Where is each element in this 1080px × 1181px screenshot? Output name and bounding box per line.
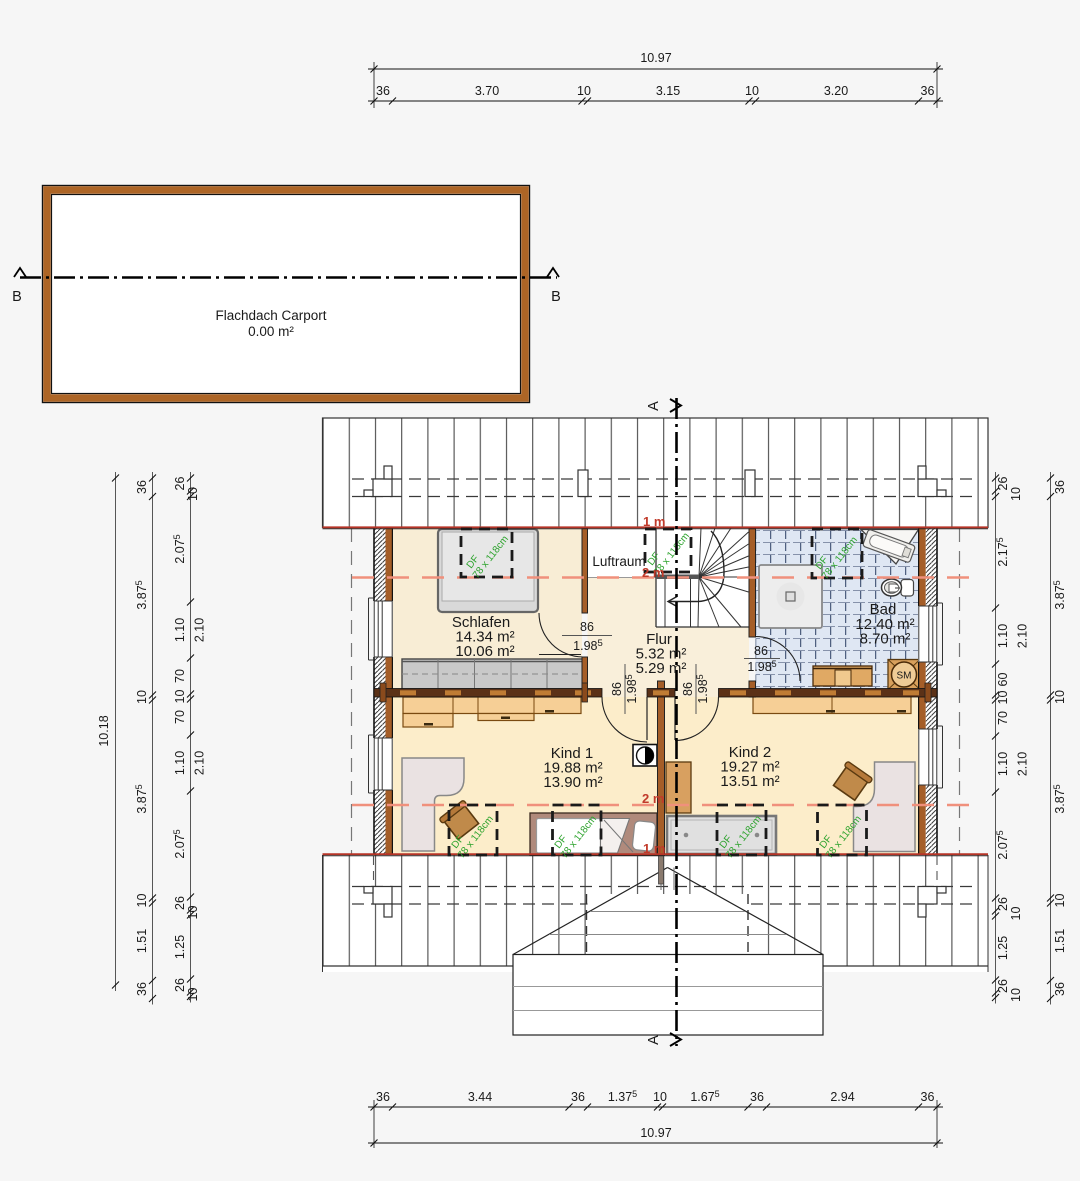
svg-text:26: 26 (996, 477, 1010, 491)
svg-text:10: 10 (996, 691, 1010, 705)
svg-text:13.51 m²: 13.51 m² (720, 773, 779, 790)
svg-text:2.10: 2.10 (1016, 624, 1030, 648)
svg-text:Luftraum: Luftraum (592, 554, 645, 569)
svg-text:86: 86 (610, 682, 624, 696)
svg-text:B: B (551, 289, 561, 305)
svg-text:26: 26 (173, 477, 187, 491)
svg-text:26: 26 (996, 897, 1010, 911)
svg-text:10: 10 (653, 1090, 667, 1104)
svg-text:10.97: 10.97 (640, 1126, 671, 1140)
svg-text:36: 36 (1053, 982, 1067, 996)
svg-text:10: 10 (1009, 487, 1023, 501)
svg-text:1.10: 1.10 (173, 618, 187, 642)
svg-text:10: 10 (135, 894, 149, 908)
svg-text:1 m: 1 m (643, 841, 665, 856)
svg-text:10.06 m²: 10.06 m² (455, 643, 514, 660)
svg-text:1.25: 1.25 (173, 935, 187, 959)
svg-text:36: 36 (376, 1090, 390, 1104)
svg-text:10: 10 (1009, 988, 1023, 1002)
svg-text:2.10: 2.10 (193, 751, 207, 775)
svg-text:26: 26 (996, 979, 1010, 993)
svg-text:1.25: 1.25 (996, 936, 1010, 960)
svg-text:1.10: 1.10 (996, 624, 1010, 648)
svg-text:3.15: 3.15 (656, 84, 680, 98)
svg-text:36: 36 (750, 1090, 764, 1104)
svg-text:10.18: 10.18 (97, 715, 111, 746)
svg-text:2.10: 2.10 (1016, 752, 1030, 776)
svg-text:10: 10 (186, 906, 200, 920)
svg-text:13.90 m²: 13.90 m² (543, 774, 602, 791)
svg-text:36: 36 (571, 1090, 585, 1104)
svg-text:70: 70 (173, 710, 187, 724)
svg-text:36: 36 (135, 480, 149, 494)
svg-text:70: 70 (996, 711, 1010, 725)
svg-text:5.29 m²: 5.29 m² (636, 660, 687, 677)
svg-text:1.51: 1.51 (1053, 929, 1067, 953)
svg-text:10: 10 (135, 690, 149, 704)
svg-text:86: 86 (681, 682, 695, 696)
svg-text:36: 36 (376, 84, 390, 98)
svg-text:SM: SM (897, 671, 912, 682)
svg-text:8.70 m²: 8.70 m² (860, 631, 911, 648)
svg-text:A: A (646, 401, 662, 411)
svg-text:26: 26 (173, 978, 187, 992)
svg-text:10: 10 (577, 84, 591, 98)
svg-text:1.10: 1.10 (996, 752, 1010, 776)
svg-text:70: 70 (173, 669, 187, 683)
svg-text:A: A (646, 1035, 662, 1045)
svg-text:36: 36 (921, 1090, 935, 1104)
svg-text:3.44: 3.44 (468, 1090, 492, 1104)
svg-text:36: 36 (921, 84, 935, 98)
svg-text:1.51: 1.51 (135, 929, 149, 953)
svg-text:36: 36 (135, 982, 149, 996)
svg-text:2.94: 2.94 (830, 1090, 854, 1104)
svg-text:10: 10 (186, 487, 200, 501)
svg-text:1 m: 1 m (643, 514, 665, 529)
svg-text:3.70: 3.70 (475, 84, 499, 98)
svg-text:2 m: 2 m (642, 791, 664, 806)
svg-text:10: 10 (1053, 894, 1067, 908)
svg-text:10: 10 (745, 84, 759, 98)
svg-text:3.20: 3.20 (824, 84, 848, 98)
svg-text:0.00 m²: 0.00 m² (248, 324, 294, 339)
svg-text:10: 10 (186, 988, 200, 1002)
svg-text:36: 36 (1053, 480, 1067, 494)
svg-text:86: 86 (580, 620, 594, 634)
svg-text:2 m: 2 m (642, 565, 664, 580)
svg-text:10: 10 (1053, 690, 1067, 704)
svg-text:10.97: 10.97 (640, 51, 671, 65)
svg-text:10: 10 (1009, 907, 1023, 921)
svg-text:10: 10 (173, 690, 187, 704)
svg-text:Flachdach Carport: Flachdach Carport (215, 308, 326, 323)
svg-text:26: 26 (173, 896, 187, 910)
svg-text:2.10: 2.10 (193, 618, 207, 642)
svg-text:60: 60 (996, 673, 1010, 687)
svg-text:1.10: 1.10 (173, 751, 187, 775)
svg-text:B: B (12, 289, 22, 305)
svg-text:86: 86 (754, 644, 768, 658)
